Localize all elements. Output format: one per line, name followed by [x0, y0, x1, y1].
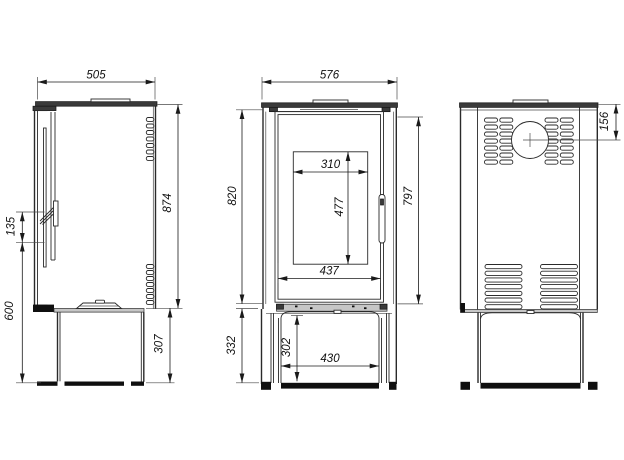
dim-label-430: 430 [320, 353, 340, 365]
dim-label-505: 505 [86, 69, 106, 81]
dim-label-874: 874 [162, 193, 174, 212]
dim-label-477: 477 [334, 197, 346, 217]
dim-label-302: 302 [281, 337, 293, 357]
dim-label-576: 576 [320, 69, 340, 81]
front-bottom-band [277, 304, 388, 311]
dim-label-797: 797 [403, 186, 415, 206]
stove-dimension-drawing: 505 874 307 135 600 [0, 0, 624, 460]
dim-label-332: 332 [226, 335, 238, 355]
dim-label-135: 135 [5, 216, 17, 236]
dim-label-307: 307 [154, 334, 166, 354]
dim-label-820: 820 [227, 186, 239, 206]
dim-label-437: 437 [320, 266, 340, 278]
side-vent-slots-lower [146, 265, 154, 305]
dim-label-156: 156 [599, 111, 611, 131]
dim-label-310: 310 [321, 159, 341, 171]
side-vent-slots-upper [146, 118, 154, 161]
dim-label-600: 600 [4, 301, 16, 321]
